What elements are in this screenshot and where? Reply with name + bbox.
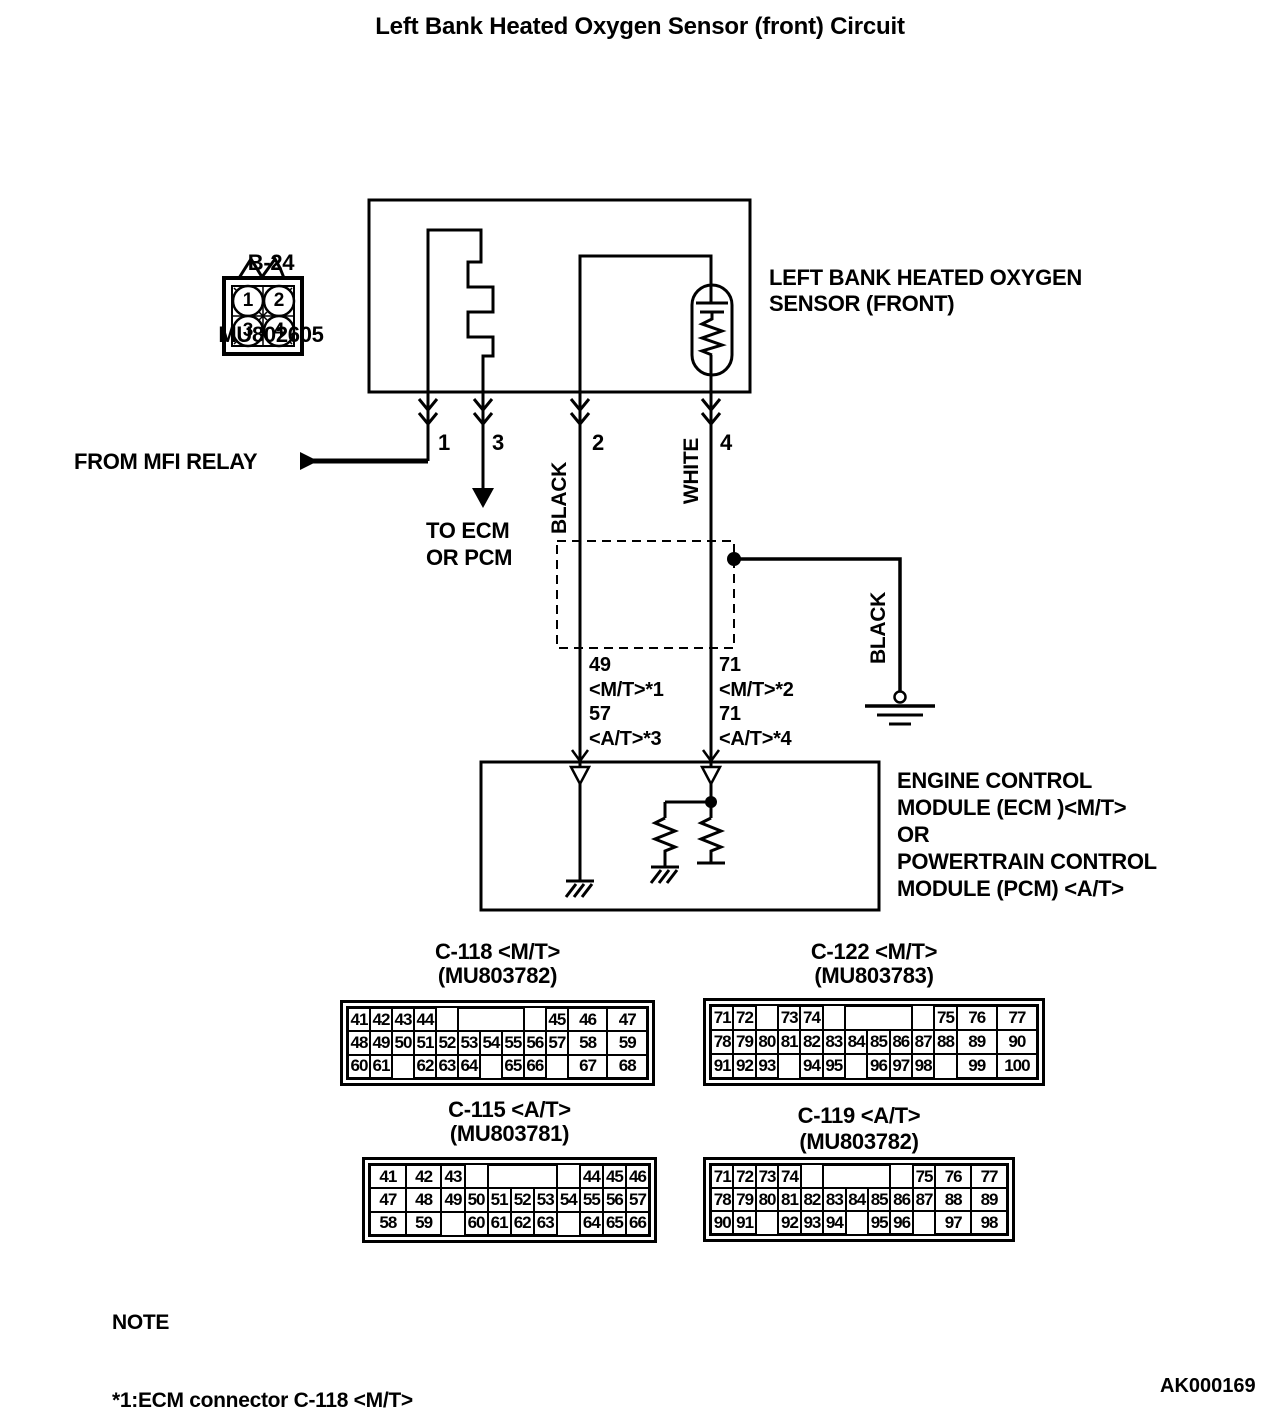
pin-cell-c115-49: 49 — [440, 1187, 465, 1212]
connector-id: C-122 <M/T> — [703, 940, 1045, 964]
pin-cell-c122-98: 98 — [911, 1053, 935, 1079]
text-line: 71 — [719, 702, 794, 727]
pin-cell-c115-54: 54 — [556, 1187, 581, 1212]
pin-cell-c118-53: 53 — [457, 1030, 481, 1055]
pin-cell-c122-83: 83 — [822, 1029, 846, 1055]
text-line: OR PCM — [426, 544, 512, 571]
pin-cell-c115-62: 62 — [510, 1211, 535, 1236]
pin-cell-c122-89: 89 — [956, 1029, 998, 1055]
pin-cell-c119-90: 90 — [710, 1210, 734, 1235]
b24-pin-chevrons — [419, 399, 720, 424]
pin-cell-c122-82: 82 — [799, 1029, 823, 1055]
connector-part: (MU803782) — [340, 964, 655, 988]
pin-cell-c122-76: 76 — [956, 1005, 998, 1031]
pin-cell-c119-85: 85 — [867, 1187, 891, 1212]
sensor-label: LEFT BANK HEATED OXYGENSENSOR (FRONT) — [769, 265, 1082, 317]
pin-cell-c119-71: 71 — [710, 1164, 734, 1189]
pin-cell-c119-82: 82 — [800, 1187, 824, 1212]
pin-cell-c119-86: 86 — [889, 1187, 913, 1212]
pin-cell-c118-66: 66 — [523, 1054, 547, 1079]
pin-cell-c115-53: 53 — [533, 1187, 558, 1212]
pin-cell-c118-45: 45 — [545, 1007, 569, 1032]
text-line: POWERTRAIN CONTROL — [897, 848, 1157, 875]
text-line: MODULE (PCM) <A/T> — [897, 875, 1157, 902]
text-line: ENGINE CONTROL — [897, 767, 1157, 794]
pin-cell-c119-79: 79 — [732, 1187, 756, 1212]
pin-cell-c122-95: 95 — [822, 1053, 846, 1079]
pin-cell-c122-71: 71 — [710, 1005, 734, 1031]
pin-cell-c119-73: 73 — [755, 1164, 779, 1189]
pin-cell-c115-56: 56 — [602, 1187, 627, 1212]
pin-cell-c118-63: 63 — [435, 1054, 459, 1079]
pin-cell-c119-92: 92 — [777, 1210, 801, 1235]
pin-cell-c118-50: 50 — [391, 1030, 415, 1055]
pin-cell-c118-46: 46 — [567, 1007, 609, 1032]
pin-cell-c115-42: 42 — [405, 1164, 443, 1189]
pin-cell-c115-63: 63 — [533, 1211, 558, 1236]
connector-title-c122: C-122 <M/T> (MU803783) — [703, 940, 1045, 988]
wiring-diagram-page: Left Bank Heated Oxygen Sensor (front) C… — [0, 0, 1280, 1414]
pin-cell-c118-47: 47 — [606, 1007, 648, 1032]
heater-element — [428, 230, 493, 392]
text-line: TO ECM — [426, 517, 512, 544]
pin-cell-c115-44: 44 — [579, 1164, 604, 1189]
pin-cell-c115-59: 59 — [405, 1211, 443, 1236]
pin-cell-c122-97: 97 — [889, 1053, 913, 1079]
note-lines: *1:ECM connector C-118 <M/T>*2:ECM conne… — [112, 1388, 414, 1414]
white-wire-pin-label: 71<M/T>*271<A/T>*4 — [719, 653, 794, 751]
wire-number-2: 2 — [592, 430, 604, 456]
b24-pin-4: 4 — [270, 320, 288, 342]
text-line: OR — [897, 821, 1157, 848]
connector-part: (MU803781) — [362, 1122, 657, 1146]
pin-cell-c122-75: 75 — [933, 1005, 957, 1031]
blank-cell — [822, 1164, 891, 1189]
text-line: *1:ECM connector C-118 <M/T> — [112, 1388, 414, 1414]
connector-id: C-118 <M/T> — [340, 940, 655, 964]
drawing-code: AK000169 — [1160, 1373, 1256, 1399]
chassis-ground-icon — [651, 867, 679, 883]
connector-id: C-115 <A/T> — [362, 1098, 657, 1122]
from-mfi-relay-label: FROM MFI RELAY — [74, 449, 257, 475]
shield-junction-dot — [727, 552, 741, 566]
b24-pin-3: 3 — [239, 320, 257, 342]
connector-table-c119: 7172737475767778798081828384858687888990… — [703, 1157, 1015, 1242]
pin-cell-c122-93: 93 — [755, 1053, 779, 1079]
pin-cell-c122-92: 92 — [732, 1053, 756, 1079]
pin-cell-c119-95: 95 — [867, 1210, 891, 1235]
pin-cell-c122-72: 72 — [732, 1005, 756, 1031]
text-line: <M/T>*1 — [589, 678, 664, 703]
pin-cell-c119-84: 84 — [845, 1187, 869, 1212]
pin-cell-c118-49: 49 — [369, 1030, 393, 1055]
pin-cell-c122-81: 81 — [777, 1029, 801, 1055]
pin-cell-c122-88: 88 — [933, 1029, 957, 1055]
b24-pin-2: 2 — [270, 290, 288, 312]
connector-title-c115: C-115 <A/T> (MU803781) — [362, 1098, 657, 1146]
wire-number-1: 1 — [438, 430, 450, 456]
text-line: <A/T>*4 — [719, 727, 794, 752]
pin-cell-c119-97: 97 — [934, 1210, 972, 1235]
text-line: LEFT BANK HEATED OXYGEN — [769, 265, 1082, 291]
text-line: SENSOR (FRONT) — [769, 291, 1082, 317]
pin-cell-c118-56: 56 — [523, 1030, 547, 1055]
pin-cell-c122-87: 87 — [911, 1029, 935, 1055]
text-line: <M/T>*2 — [719, 678, 794, 703]
connector-part: (MU803783) — [703, 964, 1045, 988]
pin-cell-c118-62: 62 — [413, 1054, 437, 1079]
pin-cell-c115-52: 52 — [510, 1187, 535, 1212]
pin-cell-c118-43: 43 — [391, 1007, 415, 1032]
pin-cell-c115-48: 48 — [405, 1187, 443, 1212]
pin-cell-c122-94: 94 — [799, 1053, 823, 1079]
shield-wire-color-label: BLACK — [867, 583, 891, 673]
connector-table-c115: 4142434445464748495051525354555657585960… — [362, 1157, 657, 1243]
pin-cell-c119-91: 91 — [732, 1210, 756, 1235]
pin-cell-c118-51: 51 — [413, 1030, 437, 1055]
pin-cell-c115-47: 47 — [369, 1187, 407, 1212]
text-line: 71 — [719, 653, 794, 678]
pin-cell-c118-65: 65 — [501, 1054, 525, 1079]
pin-cell-c122-91: 91 — [710, 1053, 734, 1079]
pin-cell-c118-41: 41 — [347, 1007, 371, 1032]
pin-cell-c119-77: 77 — [970, 1164, 1008, 1189]
pin-cell-c115-66: 66 — [625, 1211, 650, 1236]
pin-cell-c118-68: 68 — [606, 1054, 648, 1079]
pin-cell-c118-64: 64 — [457, 1054, 481, 1079]
pin-cell-c115-58: 58 — [369, 1211, 407, 1236]
pin-cell-c122-77: 77 — [996, 1005, 1038, 1031]
pin-cell-c122-96: 96 — [866, 1053, 890, 1079]
note-heading: NOTE — [112, 1310, 414, 1336]
pin-cell-c122-90: 90 — [996, 1029, 1038, 1055]
wire-number-3: 3 — [492, 430, 504, 456]
pin-cell-c118-57: 57 — [545, 1030, 569, 1055]
ecm-pin-triangle — [702, 767, 720, 784]
pin-cell-c118-58: 58 — [567, 1030, 609, 1055]
wire-4-color-label: WHITE — [680, 426, 704, 516]
pin-cell-c118-42: 42 — [369, 1007, 393, 1032]
pin-cell-c122-78: 78 — [710, 1029, 734, 1055]
pin-cell-c115-51: 51 — [487, 1187, 512, 1212]
pin-cell-c119-88: 88 — [934, 1187, 972, 1212]
pin-cell-c119-78: 78 — [710, 1187, 734, 1212]
pin-cell-c118-52: 52 — [435, 1030, 459, 1055]
from-mfi-arrow-icon — [300, 452, 318, 470]
sensing-element — [580, 256, 732, 392]
connector-title-c118: C-118 <M/T> (MU803782) — [340, 940, 655, 988]
connector-part: (MU803782) — [703, 1129, 1015, 1155]
pin-cell-c118-44: 44 — [413, 1007, 437, 1032]
pin-cell-c119-72: 72 — [732, 1164, 756, 1189]
pin-cell-c115-57: 57 — [625, 1187, 650, 1212]
ecm-box — [481, 762, 879, 910]
text-line: MODULE (ECM )<M/T> — [897, 794, 1157, 821]
text-line: 49 — [589, 653, 664, 678]
note-block: NOTE *1:ECM connector C-118 <M/T>*2:ECM … — [112, 1258, 414, 1414]
chassis-ground-icon — [566, 881, 594, 897]
pin-cell-c122-74: 74 — [799, 1005, 823, 1031]
pin-cell-c119-81: 81 — [777, 1187, 801, 1212]
ecm-internal-circuit — [566, 762, 725, 897]
b24-name: B-24 — [196, 251, 346, 275]
resistor-icon — [655, 818, 675, 866]
connector-title-c119: C-119 <A/T> (MU803782) — [703, 1103, 1015, 1155]
earth-ground-icon — [865, 692, 935, 725]
pin-cell-c119-87: 87 — [912, 1187, 936, 1212]
pin-cell-c115-61: 61 — [487, 1211, 512, 1236]
pin-cell-c115-50: 50 — [464, 1187, 489, 1212]
pin-cell-c122-84: 84 — [844, 1029, 868, 1055]
pin-cell-c119-80: 80 — [755, 1187, 779, 1212]
pin-cell-c115-45: 45 — [602, 1164, 627, 1189]
pin-cell-c118-60: 60 — [347, 1054, 371, 1079]
pin-cell-c122-80: 80 — [755, 1029, 779, 1055]
pin-cell-c115-41: 41 — [369, 1164, 407, 1189]
pin-cell-c118-48: 48 — [347, 1030, 371, 1055]
to-ecm-arrow-icon — [472, 488, 494, 508]
pin-cell-c118-59: 59 — [606, 1030, 648, 1055]
ecm-label: ENGINE CONTROLMODULE (ECM )<M/T>ORPOWERT… — [897, 767, 1157, 902]
pin-cell-c115-64: 64 — [579, 1211, 604, 1236]
to-ecm-label: TO ECMOR PCM — [426, 517, 512, 571]
pin-cell-c118-54: 54 — [479, 1030, 503, 1055]
wire-number-4: 4 — [720, 430, 732, 456]
pin-cell-c118-61: 61 — [369, 1054, 393, 1079]
pin-cell-c119-75: 75 — [912, 1164, 936, 1189]
ecm-junction-dot — [705, 796, 717, 808]
page-title: Left Bank Heated Oxygen Sensor (front) C… — [0, 14, 1280, 40]
pin-cell-c119-89: 89 — [970, 1187, 1008, 1212]
text-line: 57 — [589, 702, 664, 727]
pin-cell-c119-94: 94 — [822, 1210, 846, 1235]
pin-cell-c119-74: 74 — [777, 1164, 801, 1189]
pin-cell-c119-76: 76 — [934, 1164, 972, 1189]
pin-cell-c122-85: 85 — [866, 1029, 890, 1055]
black-wire-pin-label: 49<M/T>*157<A/T>*3 — [589, 653, 664, 751]
pin-cell-c119-83: 83 — [822, 1187, 846, 1212]
connector-table-c118: 4142434445464748495051525354555657585960… — [340, 1000, 655, 1086]
resistor-icon — [701, 818, 721, 862]
pin-cell-c115-43: 43 — [440, 1164, 465, 1189]
pin-cell-c118-55: 55 — [501, 1030, 525, 1055]
blank-cell — [844, 1005, 913, 1031]
pin-cell-c119-98: 98 — [970, 1210, 1008, 1235]
connector-table-c122: 7172737475767778798081828384858687888990… — [703, 998, 1045, 1086]
pin-cell-c115-65: 65 — [602, 1211, 627, 1236]
wire-2-color-label: BLACK — [548, 453, 572, 543]
pin-cell-c118-67: 67 — [567, 1054, 609, 1079]
blank-cell — [487, 1164, 558, 1189]
connector-id: C-119 <A/T> — [703, 1103, 1015, 1129]
pin-cell-c122-99: 99 — [956, 1053, 998, 1079]
pin-cell-c115-55: 55 — [579, 1187, 604, 1212]
pin-cell-c122-100: 100 — [996, 1053, 1038, 1079]
pin-cell-c119-96: 96 — [889, 1210, 913, 1235]
ecm-pin-triangle — [571, 767, 589, 784]
b24-pin-1: 1 — [239, 290, 257, 312]
pin-cell-c115-46: 46 — [625, 1164, 650, 1189]
shield-dashed-box — [557, 541, 734, 648]
pin-cell-c119-93: 93 — [800, 1210, 824, 1235]
blank-cell — [457, 1007, 525, 1032]
pin-cell-c122-73: 73 — [777, 1005, 801, 1031]
pin-cell-c115-60: 60 — [464, 1211, 489, 1236]
pin-cell-c122-86: 86 — [889, 1029, 913, 1055]
pin-cell-c122-79: 79 — [732, 1029, 756, 1055]
text-line: <A/T>*3 — [589, 727, 664, 752]
